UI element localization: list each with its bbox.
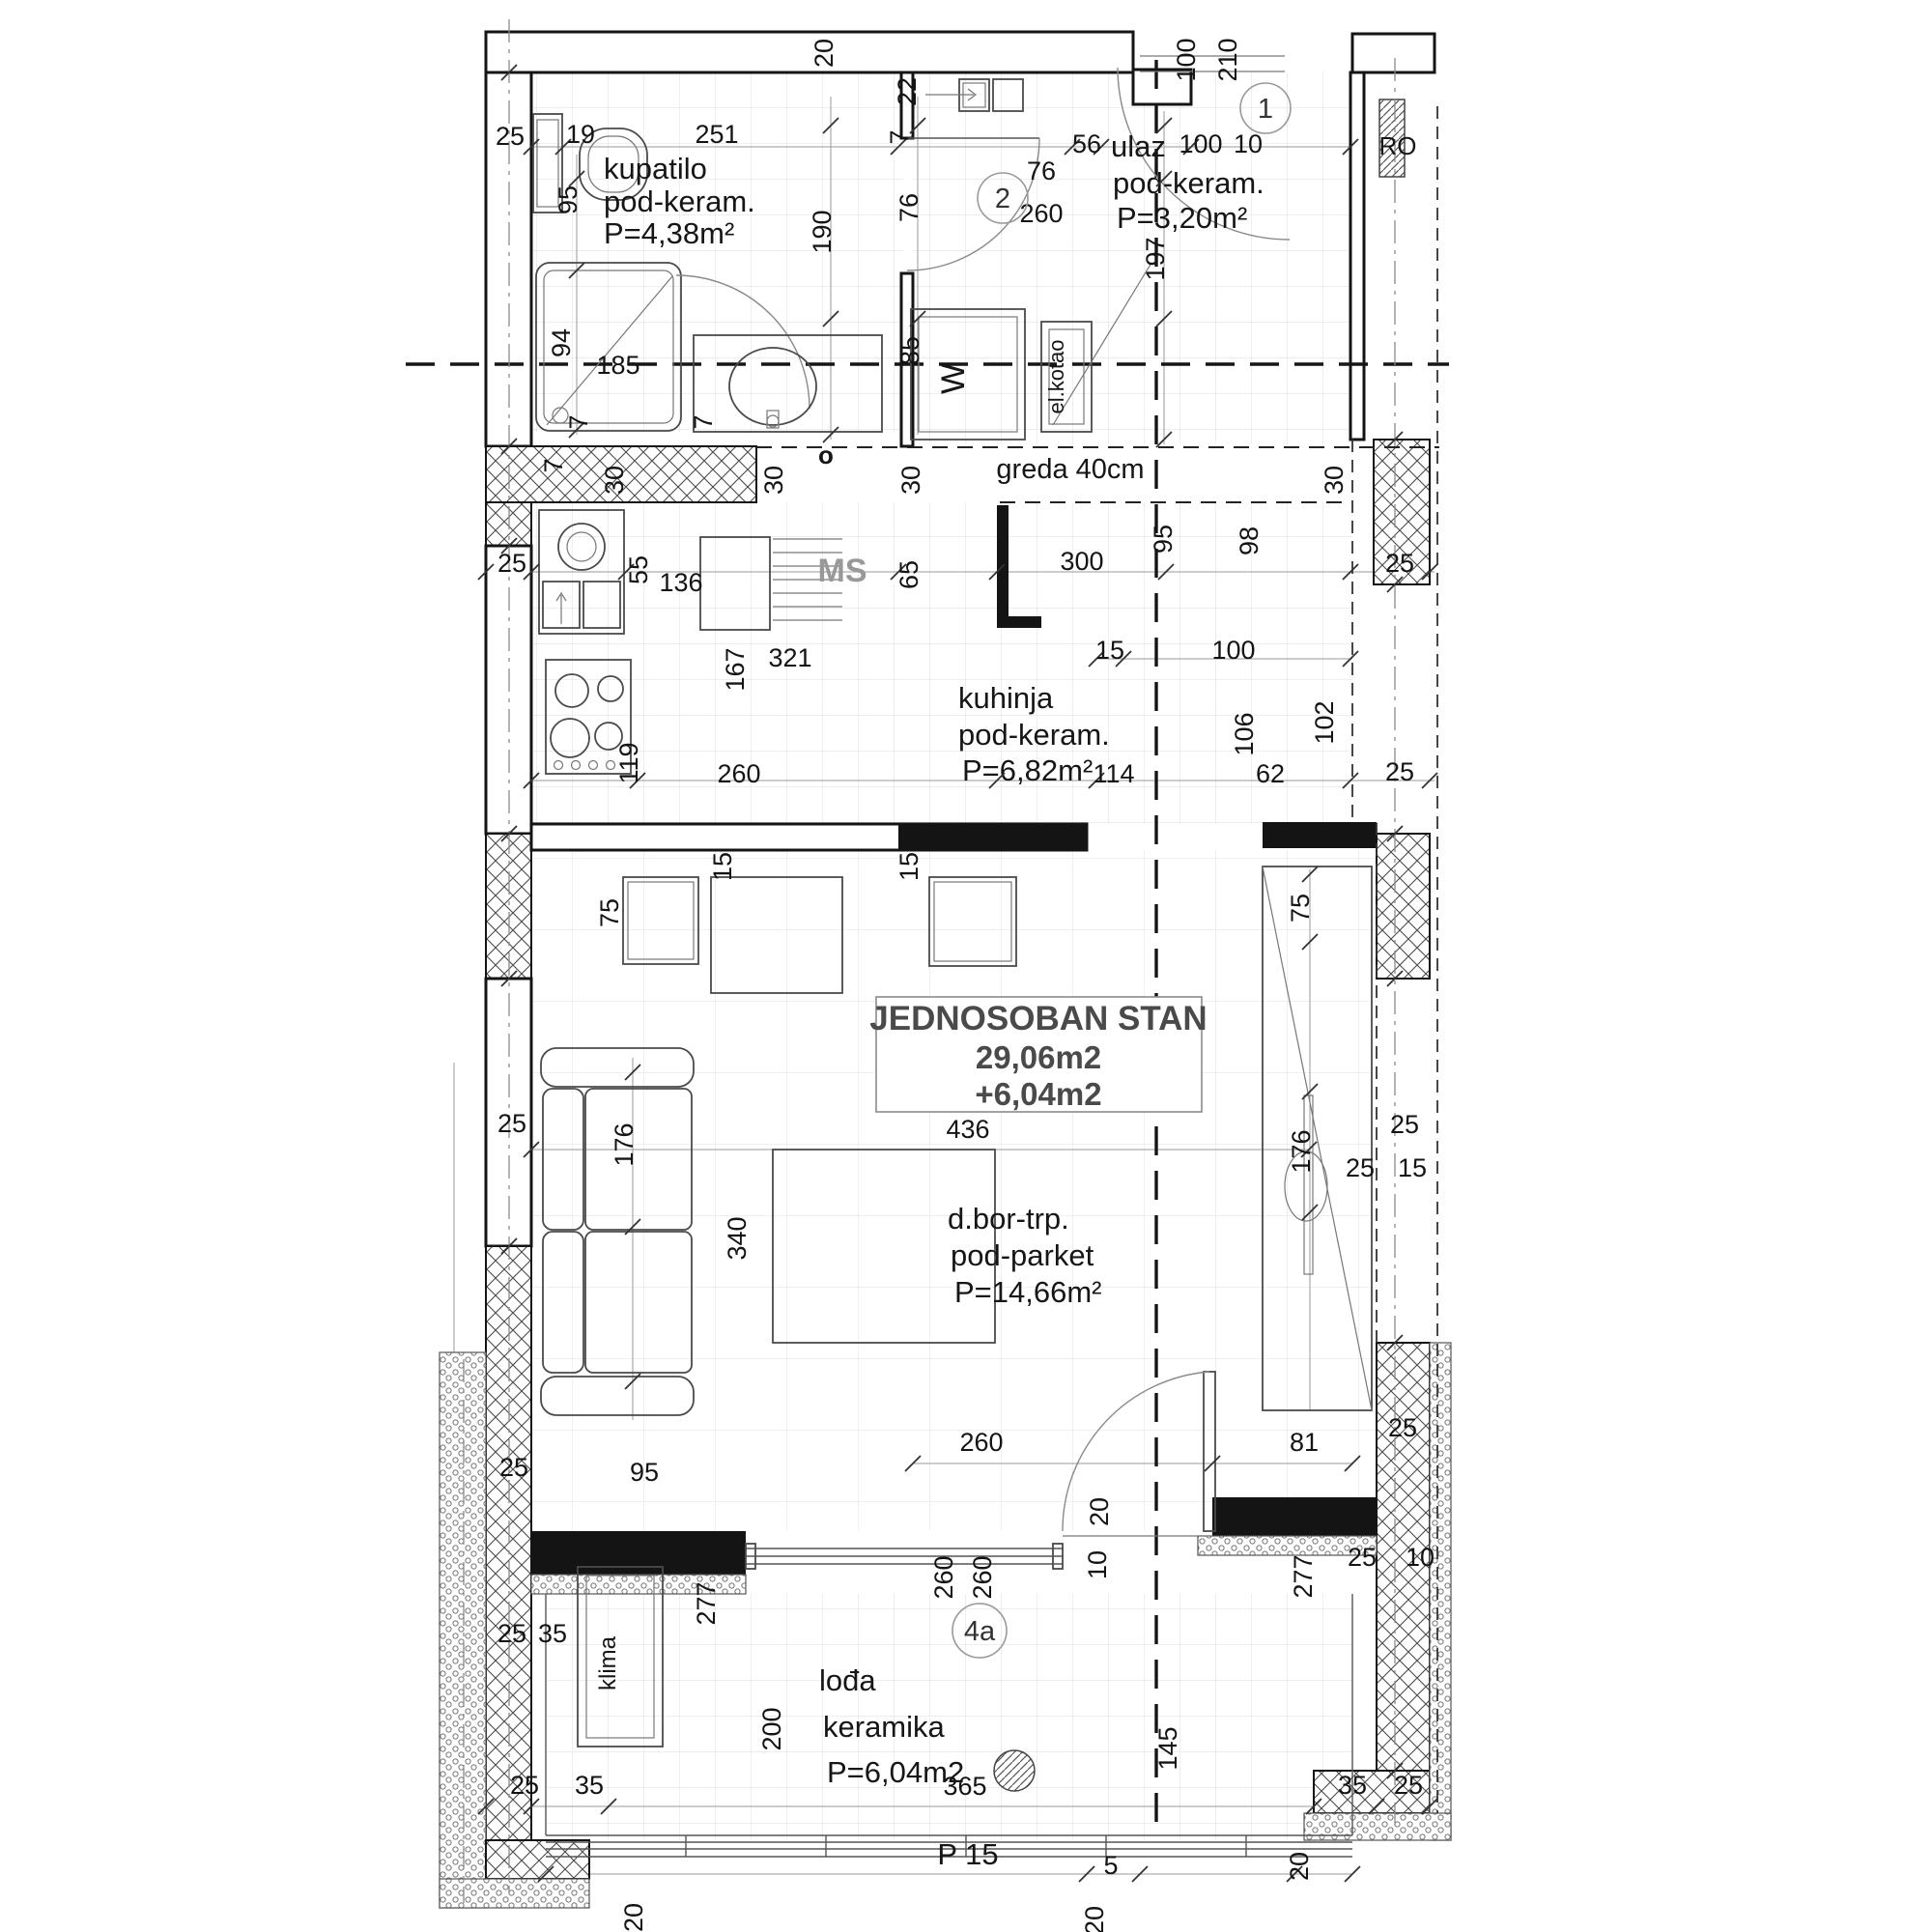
apartment-area-extra: +6,04m2 [975,1076,1101,1112]
loggia-floor: keramika [823,1710,946,1744]
dimension-label: 200 [757,1707,786,1750]
shaft-label: RO [1379,131,1417,160]
dimension-label: 20 [619,1903,648,1932]
dimension-label: 5 [1103,1851,1118,1880]
dimension-label: 56 [1072,129,1101,158]
bathroom-area: P=4,38m² [604,216,734,250]
dimension-label: 260 [717,759,760,788]
dimension-label: 35 [538,1619,567,1648]
right-wall-insulation [1430,1343,1451,1840]
dimension-label: 176 [1287,1129,1316,1173]
entrance-name: ulaz [1111,129,1166,163]
dimension-label: 25 [1346,1153,1375,1182]
living-floor: pod-parket [951,1238,1094,1272]
dimension-label: 277 [1289,1554,1318,1598]
dimension-label: 65 [895,560,923,589]
dimension-label: 260 [929,1555,958,1599]
kitchen-area: P=6,82m² [962,753,1093,787]
dimension-label: 197 [1141,237,1170,280]
dimension-label: 340 [723,1216,752,1260]
dimension-label: 22 [893,77,922,106]
dimension-label: 7 [564,414,593,429]
living-right-wall-stub [1263,822,1377,848]
dimension-label: 7 [689,414,718,429]
bottom-left-corner-wall [486,1840,589,1879]
dimension-label: 300 [1060,547,1103,576]
entrance-area: P=3,20m² [1117,201,1247,235]
kitchen-stub-wall [997,505,1009,619]
kitchen-stub-foot [997,616,1041,628]
beam-label: greda 40cm [996,454,1144,485]
dimension-label: 30 [896,466,925,495]
bottom-right-insulation [1304,1813,1451,1840]
dimension-label: 95 [554,185,582,214]
loggia-divider-left [531,1531,746,1575]
dimension-label: 98 [1235,526,1264,555]
dimension-label: 75 [595,898,624,927]
apartment-area: 29,06m2 [976,1039,1101,1075]
bathroom-floor: pod-keram. [604,185,755,218]
ac-unit-label: klima [595,1635,621,1690]
dimension-label: 102 [1310,700,1339,744]
dimension-label: 10 [1406,1543,1435,1572]
dimension-label: 85 [895,336,924,365]
floor-mark-circle [994,1750,1035,1791]
dimension-label: 25 [1348,1543,1377,1572]
washer-label: W [935,363,972,394]
dimension-label: 260 [968,1555,997,1599]
dimension-label: 25 [1385,757,1414,786]
boiler-label: el.kotao [1044,339,1068,413]
loggia-name: lođa [819,1663,876,1697]
loggia-window [746,1544,1063,1569]
dimension-label: 95 [630,1458,659,1487]
dimension-label: 76 [1027,156,1056,185]
dimension-label: 176 [610,1122,639,1166]
dimension-label: 20 [1085,1497,1114,1526]
kitchen-living-divider-solid [898,824,1087,850]
dimension-label: 25 [496,122,525,151]
dimension-label: 30 [1320,466,1349,495]
dimension-label: 167 [721,647,750,691]
dimension-label: 251 [695,120,738,149]
dimension-label: 30 [600,466,629,495]
marker-label: 2 [995,184,1010,214]
top-right-notch-wall [1352,34,1435,72]
dimension-label: 15 [1398,1153,1427,1182]
loggia-floor-grid [546,1594,1352,1840]
dimension-label: 25 [497,1619,526,1648]
loggia-divider-right [1212,1497,1377,1536]
kitchen-floor: pod-keram. [958,718,1110,752]
opening-mark-label: o [818,440,834,469]
dimension-label: 76 [895,193,923,222]
dimension-label: 190 [808,210,837,253]
dimension-label: 260 [1019,199,1063,228]
dimension-label: 106 [1230,712,1259,755]
kitchen-name: kuhinja [958,681,1054,715]
dimension-label: 81 [1290,1428,1319,1457]
apartment-title: JEDNOSOBAN STAN [869,1000,1207,1037]
dimension-label: 145 [1153,1726,1182,1770]
dimension-label: 25 [510,1771,539,1800]
dimension-label: 25 [1390,1110,1419,1139]
dimension-label: 20 [1285,1852,1314,1881]
floor-plan-drawing: kupatilo pod-keram. P=4,38m² ulaz pod-ke… [0,0,1932,1932]
left-wall-insulation [440,1352,486,1908]
dimension-label: 25 [1388,1413,1417,1442]
entrance-floor: pod-keram. [1113,166,1264,200]
right-wall-hatch-2 [1377,834,1430,979]
floor-plan-page: kupatilo pod-keram. P=4,38m² ulaz pod-ke… [0,0,1932,1932]
dimension-label: 20 [1080,1906,1109,1932]
living-area: P=14,66m² [954,1275,1102,1309]
living-floor-grid [531,850,1377,1531]
dimension-label: 95 [1149,525,1178,554]
dimension-label: 15 [895,852,923,881]
dimension-label: 10 [1234,129,1263,158]
dimension-label: 25 [497,549,526,578]
dimension-label: 185 [596,351,639,380]
dimension-label: 15 [1095,636,1124,665]
dining-table-label: MS [818,553,867,589]
dimension-label: 30 [759,466,788,495]
dimension-label: 25 [497,1109,526,1138]
dimension-label: 136 [659,568,702,597]
dimension-label: 321 [768,643,811,672]
dimension-label: 25 [499,1453,528,1482]
dimension-label: 100 [1179,129,1222,158]
dimension-label: 20 [810,39,838,68]
dimension-label: 25 [1394,1771,1423,1800]
dimension-label: 277 [692,1581,721,1625]
dimension-label: 210 [1213,38,1242,81]
dimension-label: 35 [1338,1771,1367,1800]
railing-label: P 15 [937,1837,998,1871]
dimension-label: 114 [1093,759,1134,788]
dimension-label: 19 [566,120,595,149]
dimension-label: 35 [575,1771,604,1800]
dimension-label: 15 [708,852,737,881]
dimension-label: 7 [885,129,914,144]
dimension-label: 10 [1083,1550,1112,1579]
dimension-label: 100 [1211,636,1255,665]
bottom-left-insulation [440,1879,589,1908]
dimension-label: 62 [1256,759,1285,788]
dimension-label: 100 [1172,38,1201,81]
bathroom-name: kupatilo [604,152,707,185]
dimension-label: 7 [539,458,568,472]
entrance-floor-grid [913,72,1352,444]
marker-label: 1 [1258,94,1273,125]
entrance-right-wall [1350,72,1364,440]
dimension-label: 119 [614,742,643,783]
dimension-label: 260 [959,1428,1003,1457]
dimension-label: 436 [946,1115,989,1144]
dimension-label: 55 [624,555,653,584]
dimension-label: 25 [1385,549,1414,578]
dimension-label: 75 [1286,894,1315,923]
dimension-label: 94 [547,328,576,357]
living-name: d.bor-trp. [948,1202,1069,1236]
dimension-label: 365 [943,1772,986,1801]
marker-label: 4a [964,1616,996,1647]
